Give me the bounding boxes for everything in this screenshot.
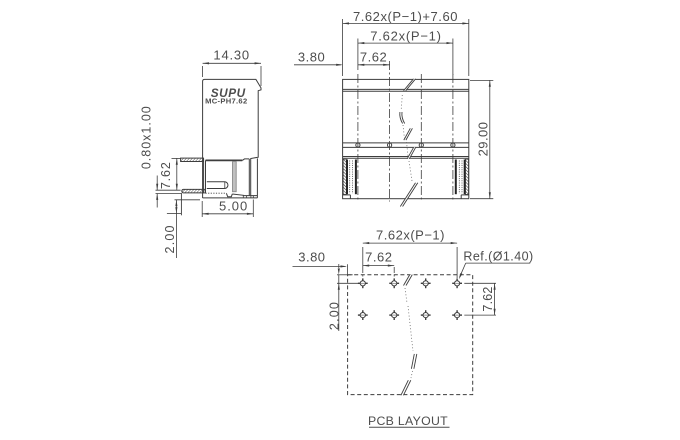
svg-text:7.62: 7.62 [365,250,392,265]
svg-text:7.62: 7.62 [360,49,388,64]
svg-text:Ref.(Ø1.40): Ref.(Ø1.40) [463,249,533,263]
svg-text:3.80: 3.80 [298,250,325,265]
svg-text:PCB LAYOUT: PCB LAYOUT [368,414,448,428]
svg-text:29.00: 29.00 [476,122,491,157]
svg-text:7.62x(P−1): 7.62x(P−1) [370,28,441,43]
svg-text:0.80x1.00: 0.80x1.00 [139,105,153,169]
svg-text:2.00: 2.00 [163,224,177,253]
svg-text:3.80: 3.80 [298,49,326,64]
svg-text:14.30: 14.30 [213,48,250,63]
svg-text:5.00: 5.00 [219,198,248,213]
svg-text:7.62: 7.62 [481,286,495,311]
svg-text:MC-PH7.62: MC-PH7.62 [205,96,247,105]
svg-text:7.62: 7.62 [159,161,173,189]
svg-text:7.62x(P−1)+7.60: 7.62x(P−1)+7.60 [353,9,458,24]
svg-text:2.00: 2.00 [328,301,342,330]
svg-text:7.62x(P−1): 7.62x(P−1) [376,227,445,242]
